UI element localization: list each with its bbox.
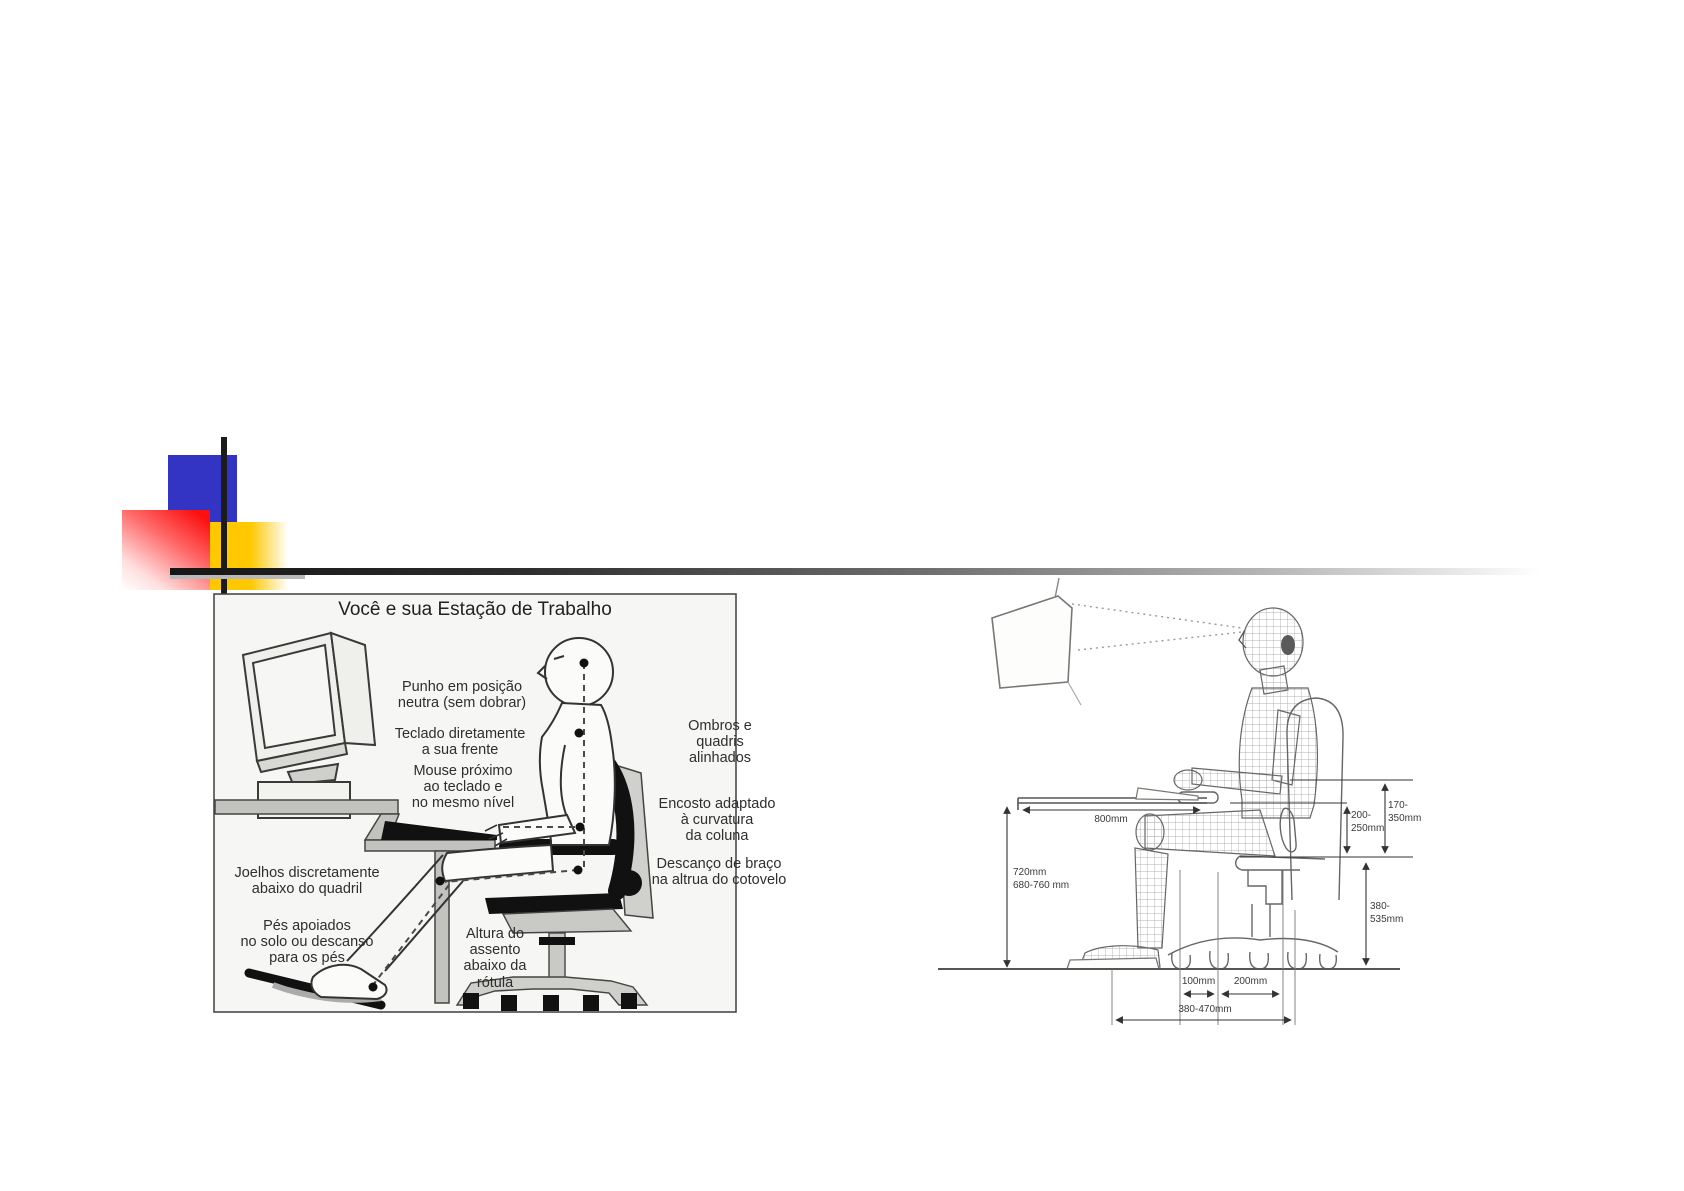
label-knees: Joelhos discretamente abaixo do quadril: [217, 865, 397, 897]
workstation-posture-diagram: Você e sua Estação de Trabalho Punho em …: [213, 593, 737, 1013]
label-backrest: Encosto adaptado à curvatura da coluna: [637, 796, 797, 845]
label-wrist: Punho em posição neutra (sem dobrar): [362, 679, 562, 711]
dim-desk-depth: 800mm: [1080, 814, 1142, 827]
label-keyboard: Teclado diretamente a sua frente: [360, 726, 560, 758]
anthropometric-drawing: [930, 570, 1420, 1040]
dim-base-span: 380-470mm: [1155, 1004, 1255, 1017]
monitor-shape: [992, 578, 1081, 705]
label-seat-height: Altura do assento abaixo da rótula: [435, 926, 555, 991]
label-shoulders: Ombros e quadris alinhados: [650, 718, 790, 767]
label-armrest: Descanço de braço na altrua do cotovelo: [629, 856, 809, 888]
decor-horizontal-rule-shadow: [170, 575, 305, 579]
anthropometric-diagram: 800mm 720mm 680-760 mm 200- 250mm 170- 3…: [930, 570, 1420, 1040]
dim-seat-height: 380-535mm: [1370, 901, 1420, 926]
dim-armrest-seat: 200- 250mm: [1351, 810, 1384, 835]
label-mouse: Mouse próximo ao teclado e no mesmo níve…: [363, 763, 563, 812]
dim-elbow-range: 170- 350mm: [1388, 800, 1421, 825]
dim-caster-offset: 100mm: [1176, 976, 1221, 989]
dim-caster-spacing: 200mm: [1228, 976, 1273, 989]
left-diagram-title: Você e sua Estação de Trabalho: [213, 599, 737, 621]
wireframe-person: [1080, 608, 1317, 967]
label-feet: Pés apoiados no solo ou descanso para os…: [217, 918, 397, 967]
sight-lines: [1072, 604, 1242, 650]
dim-desk-height: 720mm 680-760 mm: [1013, 867, 1069, 892]
